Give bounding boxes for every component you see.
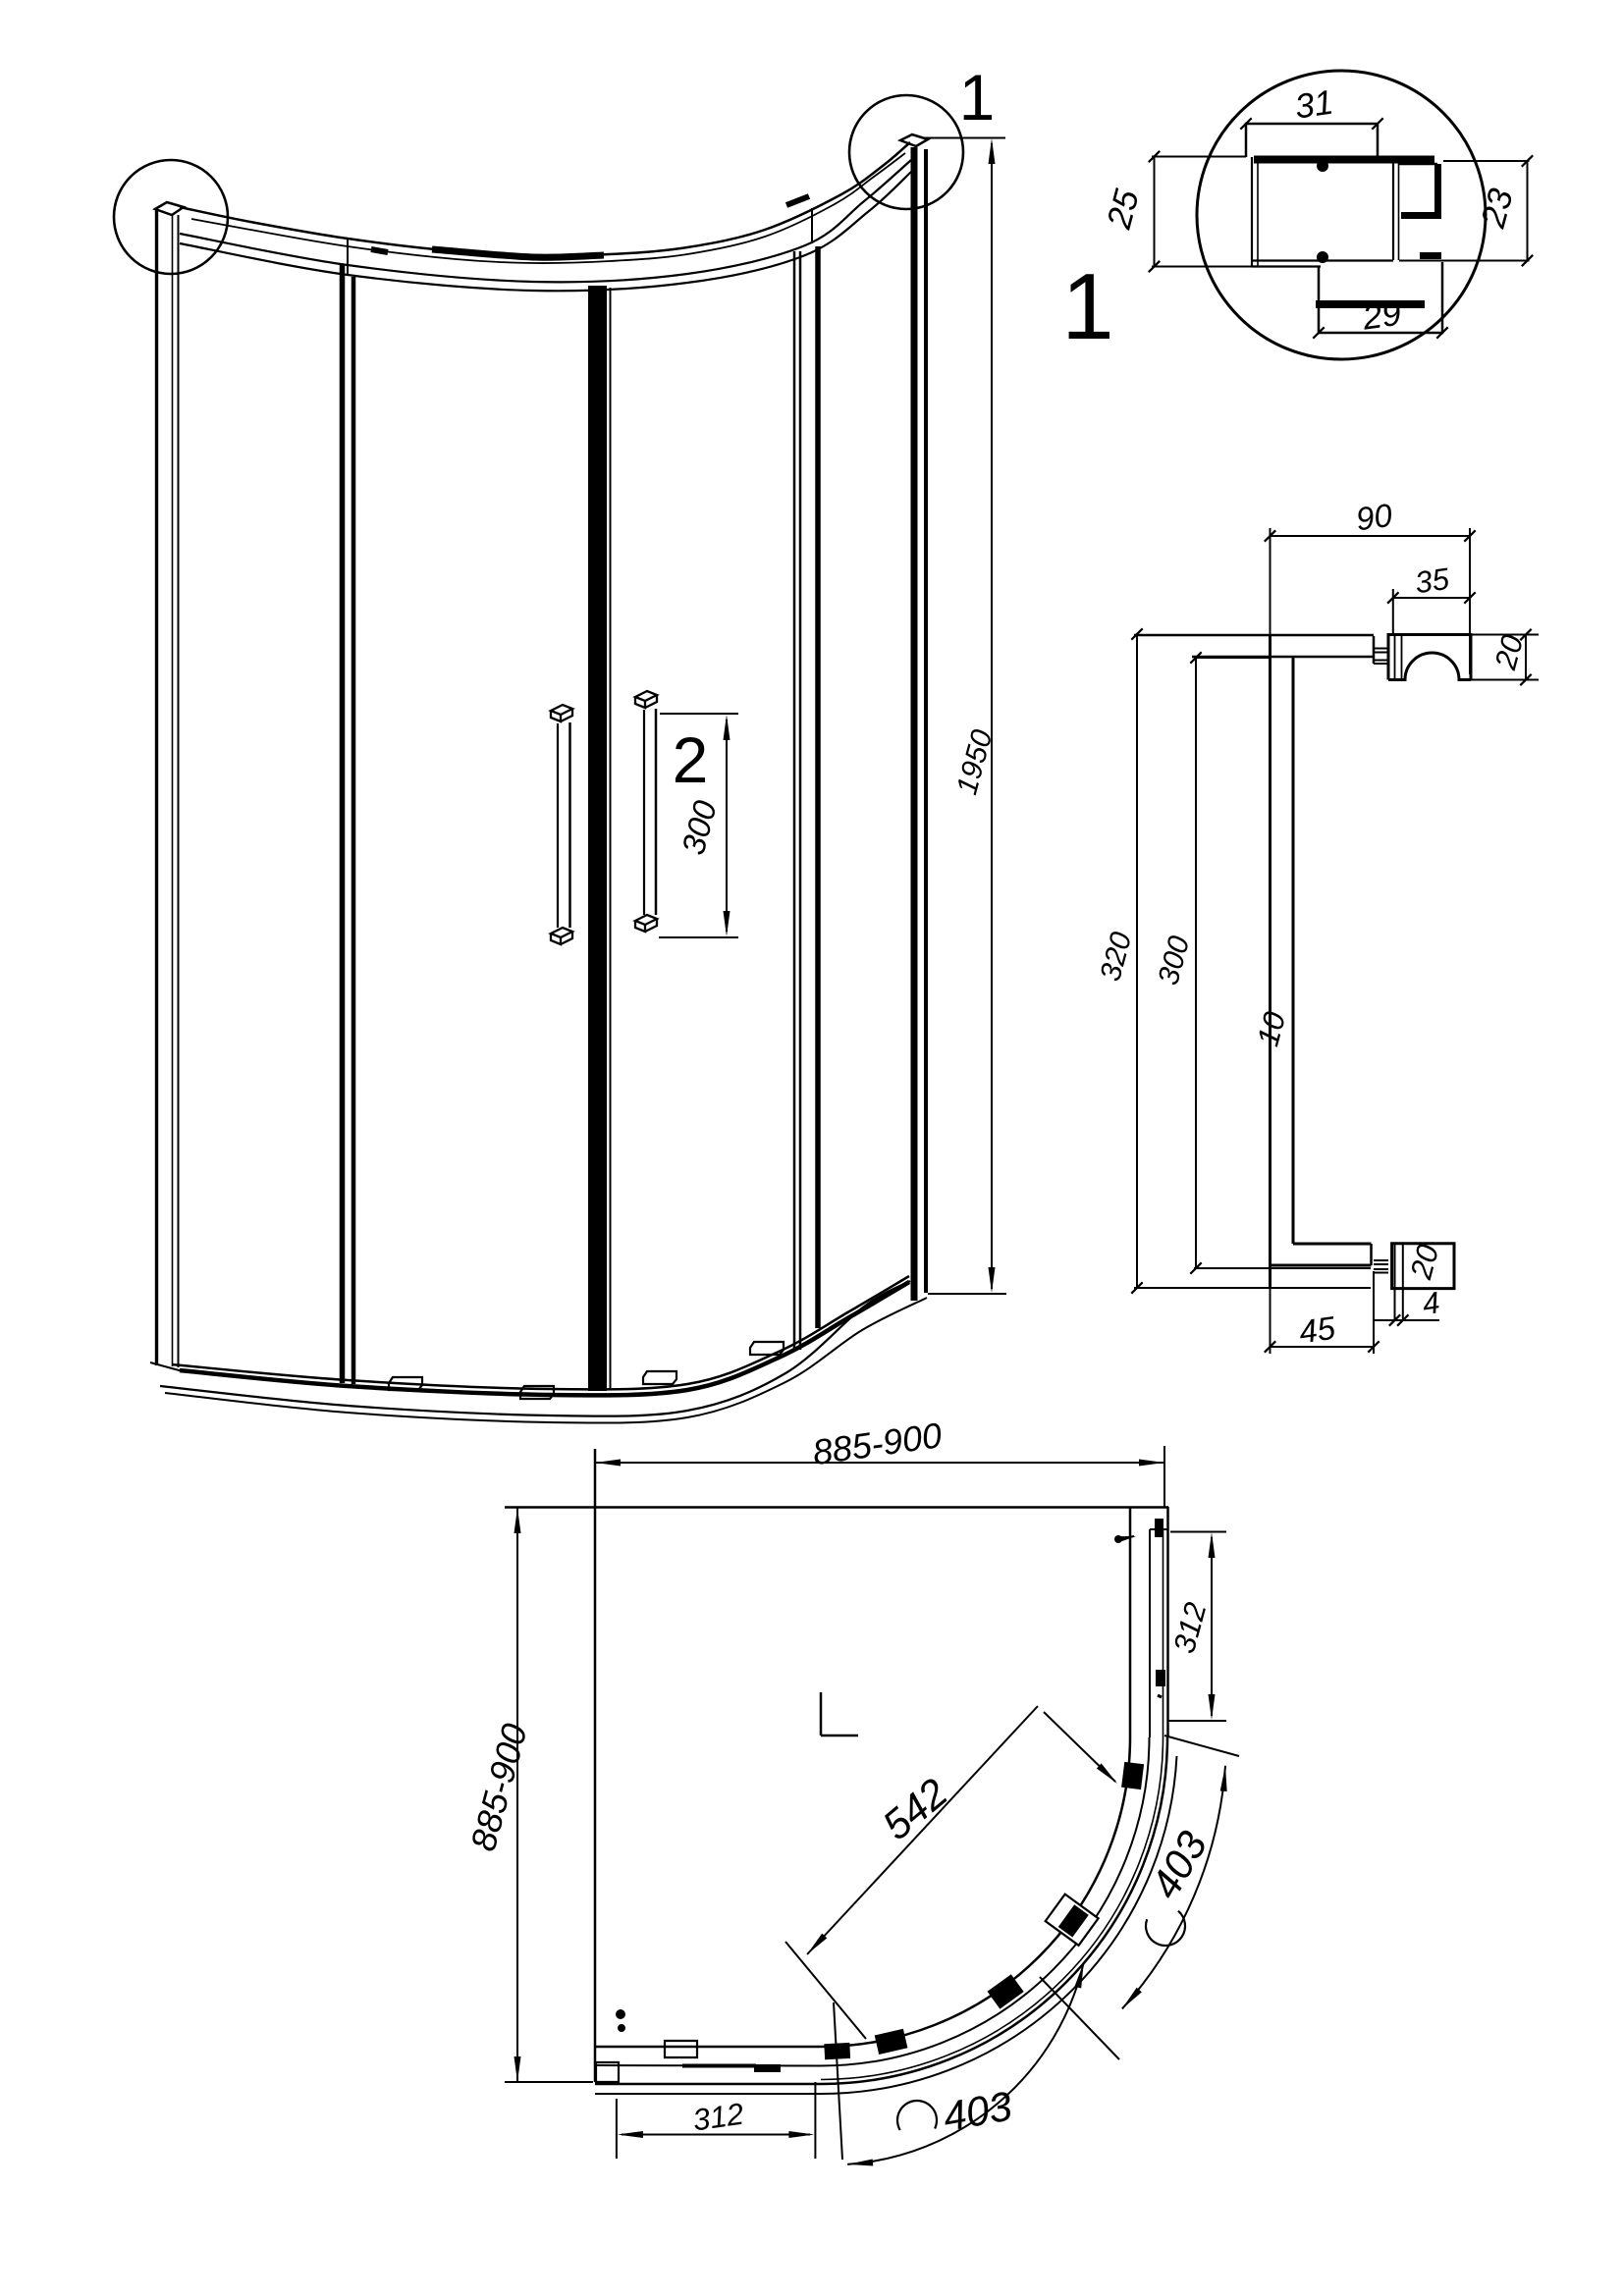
svg-text:2: 2 <box>673 723 709 796</box>
svg-text:885-900: 885-900 <box>810 1415 945 1472</box>
svg-text:45: 45 <box>1297 1309 1338 1351</box>
svg-text:1: 1 <box>1061 254 1113 359</box>
svg-text:320: 320 <box>1094 929 1138 985</box>
svg-text:20: 20 <box>1403 1241 1445 1283</box>
svg-text:29: 29 <box>1359 294 1403 338</box>
svg-text:885-900: 885-900 <box>462 1720 535 1855</box>
svg-text:1: 1 <box>959 61 996 133</box>
svg-text:312: 312 <box>690 2097 745 2138</box>
svg-text:35: 35 <box>1413 561 1452 601</box>
svg-text:542: 542 <box>874 1769 956 1848</box>
svg-text:10: 10 <box>1250 1008 1292 1049</box>
svg-text:31: 31 <box>1292 83 1335 127</box>
svg-text:300: 300 <box>1152 933 1196 988</box>
svg-text:23: 23 <box>1474 185 1521 233</box>
svg-text:403: 403 <box>940 2082 1015 2139</box>
svg-text:300: 300 <box>675 796 724 858</box>
svg-text:25: 25 <box>1100 186 1147 234</box>
svg-text:312: 312 <box>1166 1599 1213 1657</box>
svg-text:90: 90 <box>1354 497 1395 538</box>
svg-text:4: 4 <box>1421 1285 1442 1321</box>
